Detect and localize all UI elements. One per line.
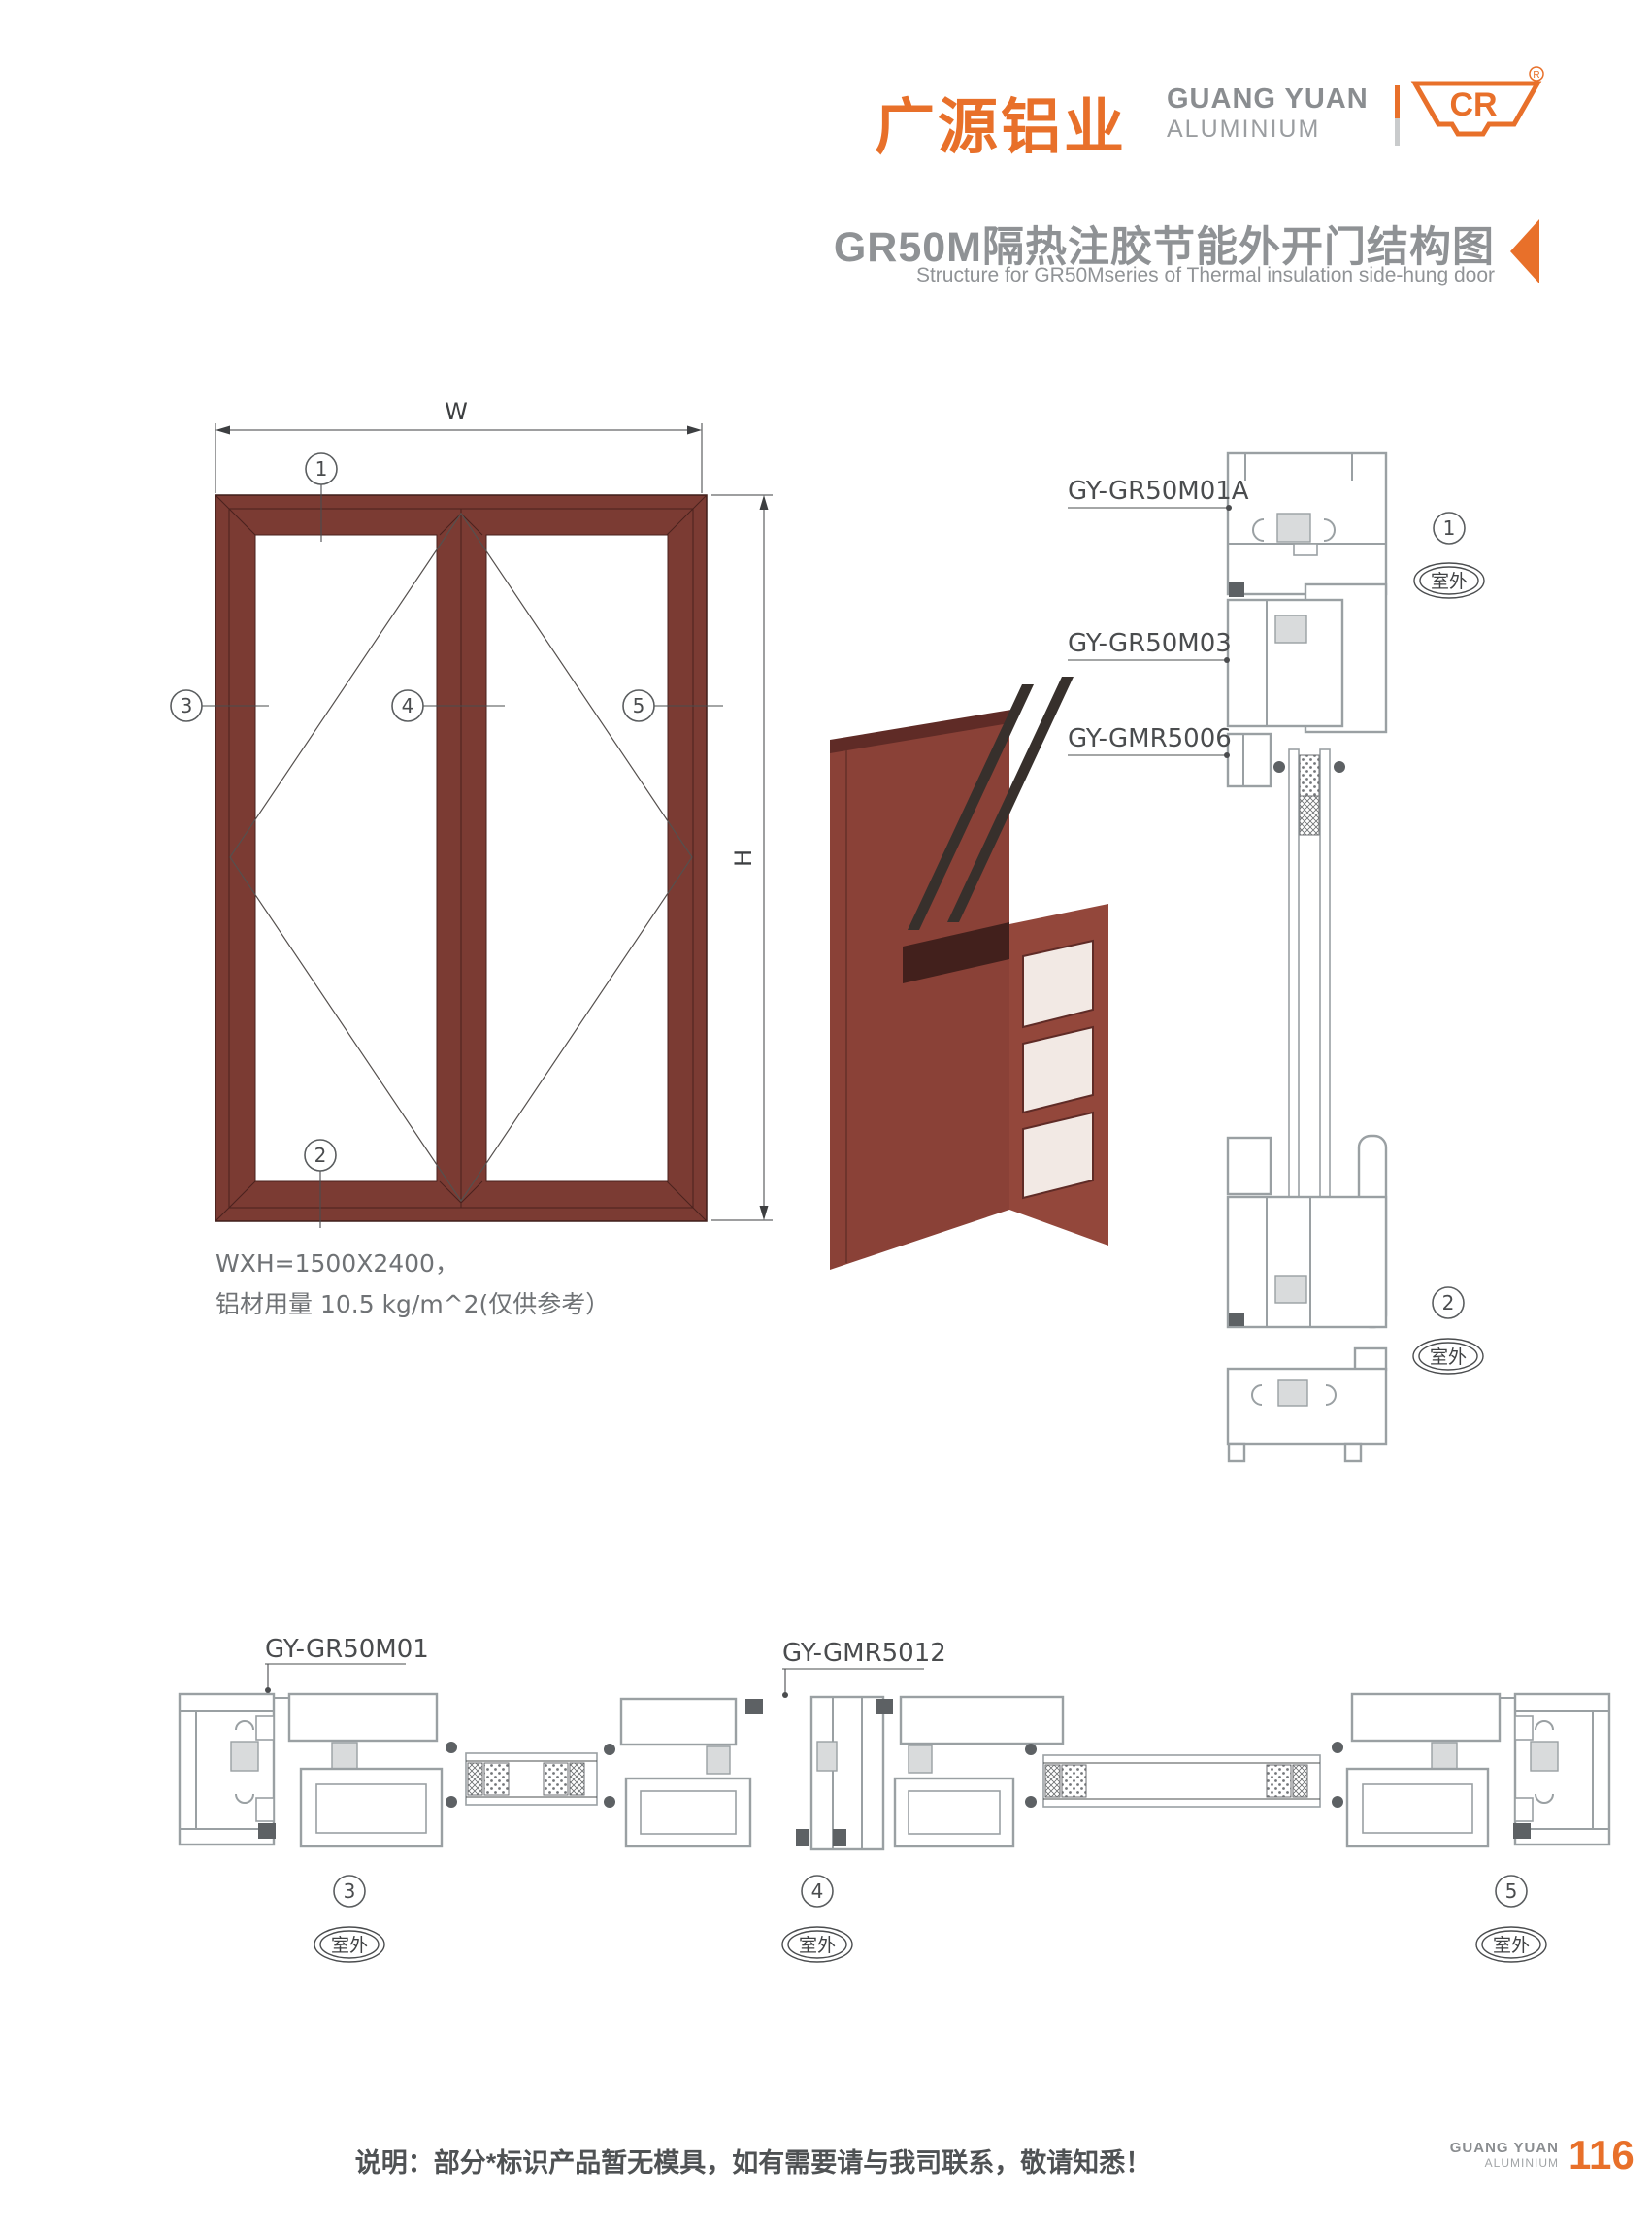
elevation-callout-5: 5	[623, 690, 654, 721]
svg-text:4: 4	[811, 1879, 824, 1903]
svg-text:5: 5	[633, 694, 645, 717]
profile-3d-render	[830, 677, 1108, 1270]
elevation-callout-3: 3	[171, 690, 202, 721]
section-callout-2: 2 室外	[1413, 1287, 1483, 1374]
size-note: WXH=1500X2400，	[215, 1249, 459, 1278]
drawing-canvas: W H 1 2 3	[0, 0, 1652, 2227]
outdoor-tag: 室外	[1430, 1346, 1467, 1368]
elevation-callout-2: 2	[305, 1140, 336, 1171]
outdoor-tag: 室外	[1493, 1935, 1530, 1956]
part-label-sash: GY-GR50M03	[1068, 629, 1232, 658]
part-label-bead: GY-GMR5006	[1068, 724, 1232, 753]
part-label-plan-frame: GY-GR50M01	[265, 1635, 429, 1664]
section-callout-1: 1 室外	[1414, 513, 1484, 598]
outdoor-tag: 室外	[331, 1935, 368, 1956]
svg-text:3: 3	[344, 1879, 356, 1903]
page-number: 116	[1569, 2132, 1635, 2178]
svg-text:1: 1	[1443, 516, 1456, 540]
door-elevation: W H 1 2 3	[171, 398, 773, 1318]
svg-text:4: 4	[402, 694, 414, 717]
horizontal-section: GY-GR50M01 GY-GMR5012 3 室外 4 室外 5	[180, 1635, 1609, 1962]
svg-text:1: 1	[315, 457, 328, 481]
door-leaf-right	[486, 535, 668, 1181]
section-callout-5: 5 室外	[1476, 1876, 1546, 1962]
outdoor-tag: 室外	[1431, 571, 1468, 592]
elevation-callout-4: 4	[392, 690, 423, 721]
outdoor-tag: 室外	[799, 1935, 836, 1956]
section-callout-3: 3 室外	[314, 1876, 384, 1962]
elevation-callout-1: 1	[306, 453, 337, 484]
footer-brand-line1: GUANG YUAN	[1450, 2140, 1559, 2156]
plan-left-group	[180, 1694, 457, 1846]
svg-text:3: 3	[181, 694, 193, 717]
part-label-astragal: GY-GMR5012	[782, 1639, 946, 1668]
part-label-frame: GY-GR50M01A	[1068, 477, 1249, 506]
door-leaf-left	[255, 535, 437, 1181]
svg-text:2: 2	[314, 1144, 327, 1167]
dim-h-label: H	[730, 849, 757, 867]
svg-text:2: 2	[1442, 1291, 1455, 1314]
section-callout-4: 4 室外	[782, 1876, 852, 1962]
catalog-page: 广源铝业 GUANG YUAN ALUMINIUM CR R GR50M隔热注胶…	[0, 0, 1652, 2227]
footer-note: 说明：部分*标识产品暂无模具，如有需要请与我司联系，敬请知悉！	[0, 2142, 1506, 2179]
dim-w-label: W	[445, 398, 468, 425]
footer-brand: GUANG YUAN ALUMINIUM	[1450, 2140, 1559, 2170]
usage-note: 铝材用量 10.5 kg/m^2(仅供参考）	[215, 1290, 610, 1318]
footer-brand-line2: ALUMINIUM	[1450, 2156, 1559, 2170]
svg-text:5: 5	[1505, 1879, 1518, 1903]
vertical-section: GY-GR50M01A GY-GR50M03 GY-GMR5006 1 室外 2…	[1068, 453, 1484, 1461]
